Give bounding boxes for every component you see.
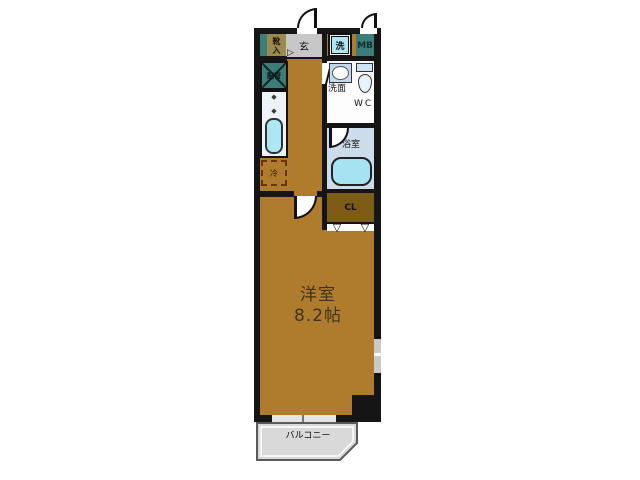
service-duct — [260, 34, 267, 57]
vanity-sink-icon — [329, 63, 352, 83]
burner-icons: ◆ ◆ — [266, 93, 282, 115]
closet-label: CL — [344, 203, 356, 213]
main-room-name: 洋室 — [300, 285, 336, 306]
bathtub-icon — [331, 157, 372, 186]
pipe-space-box: 配管 — [260, 61, 288, 90]
main-room: 洋室 8.2帖 — [278, 284, 358, 328]
fold-door-icon: ▽ — [358, 221, 372, 234]
meter-box-label: MB — [357, 41, 373, 51]
mb-door-opening — [360, 28, 377, 34]
toilet-tank-icon — [356, 63, 373, 72]
burner-icon: ◆ — [271, 93, 276, 101]
washer-space: 洗 — [328, 33, 352, 57]
closet: CL — [327, 193, 374, 222]
balcony-label: バルコニー — [272, 430, 344, 442]
refrigerator-space: 冷 — [261, 160, 287, 186]
mb-door-arc — [361, 13, 377, 28]
main-room-size: 8.2帖 — [294, 306, 342, 327]
entrance-door-arc — [297, 8, 317, 28]
entrance-door-opening — [297, 28, 317, 34]
washroom-label: 洗面 — [328, 84, 354, 94]
right-wall-window — [374, 337, 381, 375]
kitchen-sink-icon — [265, 118, 283, 154]
corner-pillar — [352, 395, 380, 422]
burner-icon: ◆ — [271, 107, 276, 115]
wc-label: WC — [354, 99, 376, 109]
fold-door-icon: ▽ — [330, 221, 344, 234]
floor-plan: 靴入 玄 ▷ 洗 MB 配管 ◆ ◆ 冷 洗面 WC 浴室 CL — [0, 0, 640, 480]
shoe-cabinet-label: 靴入 — [271, 37, 282, 55]
shoe-cabinet: 靴入 — [267, 34, 286, 57]
step-marker-icon: ▷ — [287, 47, 299, 59]
bathroom-label: 浴室 — [342, 140, 366, 150]
balcony-window — [272, 415, 336, 422]
wall-room-right — [317, 191, 327, 197]
washer-label: 洗 — [331, 36, 349, 54]
refrigerator-label: 冷 — [270, 168, 278, 179]
pipe-space-label: 配管 — [267, 71, 281, 81]
entrance-label: 玄 — [299, 38, 309, 53]
meter-box: MB — [356, 34, 374, 57]
wall-room-left — [254, 191, 294, 197]
